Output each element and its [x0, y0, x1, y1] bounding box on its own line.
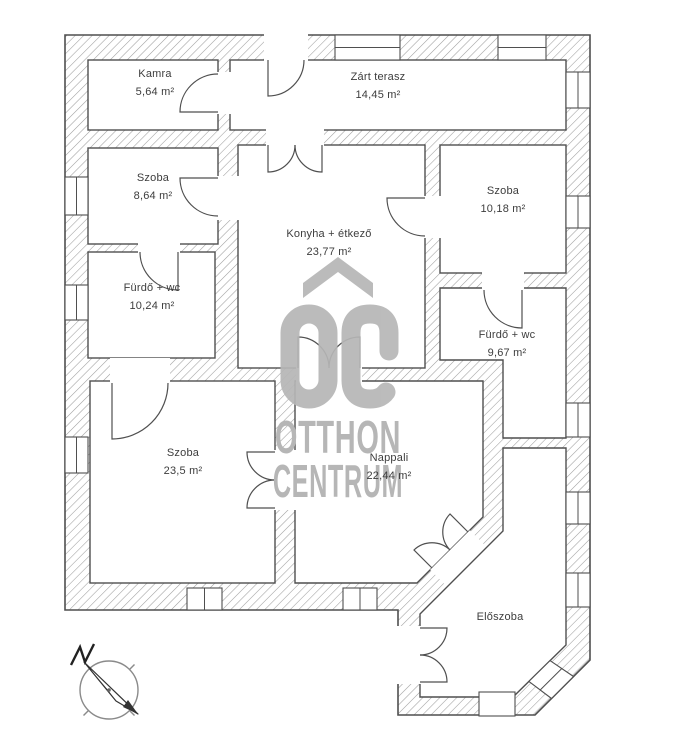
room-label-konyha: Konyha + étkező 23,77 m² — [286, 226, 371, 261]
room-label-furdo-967: Fürdő + wc 9,67 m² — [479, 327, 536, 362]
room-label-szoba-1018: Szoba 10,18 m² — [480, 183, 525, 218]
room-area: 9,67 m² — [479, 345, 536, 363]
room-name: Nappali — [366, 450, 411, 468]
room-label-nappali: Nappali 22,44 m² — [366, 450, 411, 485]
room-label-zart-terasz: Zárt terasz 14,45 m² — [351, 69, 406, 104]
room-area: 23,5 m² — [164, 463, 203, 481]
room-label-szoba-864: Szoba 8,64 m² — [134, 170, 173, 205]
room-name: Szoba — [164, 445, 203, 463]
floorplan-page: OTTHON CENTRUM Kamra 5,64 m² Zárt terasz… — [0, 0, 677, 752]
room-label-kamra: Kamra 5,64 m² — [136, 66, 175, 101]
room-name: Fürdő + wc — [124, 280, 181, 298]
room-name: Szoba — [480, 183, 525, 201]
room-area: 8,64 m² — [134, 188, 173, 206]
room-name: Konyha + étkező — [286, 226, 371, 244]
room-name: Zárt terasz — [351, 69, 406, 87]
room-area: 14,45 m² — [351, 87, 406, 105]
room-area: 10,24 m² — [124, 298, 181, 316]
room-label-eloszoba: Előszoba — [477, 609, 524, 627]
room-area: 5,64 m² — [136, 84, 175, 102]
room-labels: Kamra 5,64 m² Zárt terasz 14,45 m² Szoba… — [0, 0, 677, 752]
room-name: Kamra — [136, 66, 175, 84]
room-area: 23,77 m² — [286, 244, 371, 262]
room-label-furdo-1024: Fürdő + wc 10,24 m² — [124, 280, 181, 315]
room-name: Szoba — [134, 170, 173, 188]
room-area: 10,18 m² — [480, 201, 525, 219]
room-name: Előszoba — [477, 609, 524, 627]
room-label-szoba-235: Szoba 23,5 m² — [164, 445, 203, 480]
room-area: 22,44 m² — [366, 468, 411, 486]
room-name: Fürdő + wc — [479, 327, 536, 345]
